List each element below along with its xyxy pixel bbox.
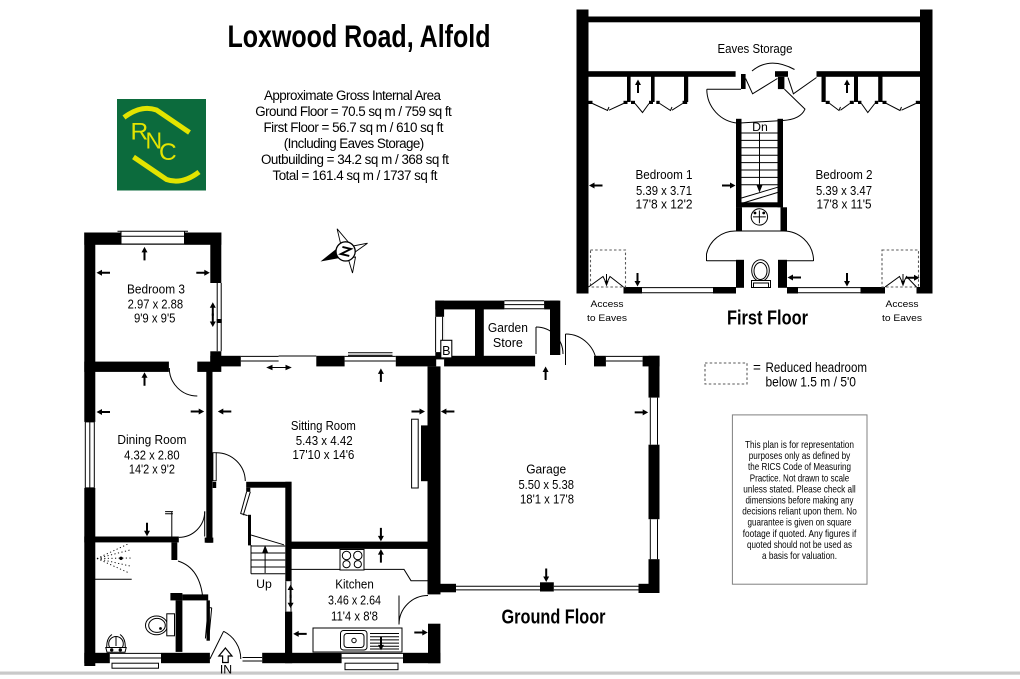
svg-text:5.50 x 5.38: 5.50 x 5.38 [518,477,574,492]
svg-text:dimensions before making any: dimensions before making any [746,496,855,507]
svg-text:Kitchen: Kitchen [335,577,374,592]
svg-text:Reduced headroom: Reduced headroom [766,360,868,375]
svg-text:decisions reliant upon them. N: decisions reliant upon them. No [742,507,857,518]
svg-text:This plan is for representatio: This plan is for representation [745,440,854,451]
svg-text:Loxwood Road, Alfold: Loxwood Road, Alfold [228,18,491,54]
svg-text:5.43 x 4.42: 5.43 x 4.42 [296,433,353,448]
svg-text:Garage: Garage [526,462,566,477]
svg-text:guarantee is given on square: guarantee is given on square [748,518,852,529]
svg-text:below 1.5 m / 5'0: below 1.5 m / 5'0 [766,375,857,390]
svg-text:Sitting Room: Sitting Room [291,418,356,433]
svg-text:Bedroom 3: Bedroom 3 [127,282,185,297]
svg-text:Practice. Not drawn to scale: Practice. Not drawn to scale [750,473,850,484]
svg-text:B: B [442,344,450,358]
svg-text:Access: Access [886,299,919,310]
svg-text:=: = [753,360,761,375]
svg-text:2.97 x 2.88: 2.97 x 2.88 [128,296,184,311]
svg-text:IN: IN [220,663,232,677]
svg-text:(Including Eaves Storage): (Including Eaves Storage) [284,136,425,151]
svg-text:Dining Room: Dining Room [117,432,186,447]
svg-text:to Eaves: to Eaves [882,313,922,324]
svg-text:Total = 161.4 sq m / 1737 sq f: Total = 161.4 sq m / 1737 sq ft [273,168,438,183]
svg-text:Ground Floor: Ground Floor [502,607,606,629]
svg-text:footage if quoted. Any figures: footage if quoted. Any figures if [743,529,857,540]
svg-text:17'8 x 11'5: 17'8 x 11'5 [817,197,872,212]
svg-text:the RICS Code of Measuring: the RICS Code of Measuring [748,462,851,473]
svg-text:Approximate Gross Internal Are: Approximate Gross Internal Area [264,88,442,103]
svg-text:Ground Floor = 70.5 sq m / 759: Ground Floor = 70.5 sq m / 759 sq ft [255,104,452,119]
svg-text:3.46 x 2.64: 3.46 x 2.64 [328,593,381,608]
svg-text:17'8 x 12'2: 17'8 x 12'2 [636,197,693,212]
svg-text:Garden: Garden [488,320,528,335]
svg-text:quoted should not be used as: quoted should not be used as [747,540,852,551]
svg-text:First Floor = 56.7 sq m / 610: First Floor = 56.7 sq m / 610 sq ft [264,120,444,135]
svg-text:4.32 x 2.80: 4.32 x 2.80 [124,448,180,463]
svg-text:Store: Store [493,335,523,350]
svg-text:Access: Access [591,299,624,310]
svg-text:11'4 x 8'8: 11'4 x 8'8 [331,609,378,624]
svg-text:First Floor: First Floor [727,308,808,330]
svg-text:Bedroom 2: Bedroom 2 [816,167,873,182]
svg-text:9'9 x 9'5: 9'9 x 9'5 [134,311,176,326]
svg-text:Up: Up [256,577,272,591]
svg-text:18'1 x 17'8: 18'1 x 17'8 [520,492,574,507]
svg-text:unless stated. Please check al: unless stated. Please check all [743,484,856,495]
svg-text:a basis for valuation.: a basis for valuation. [762,551,837,562]
svg-text:17'10 x 14'6: 17'10 x 14'6 [292,447,354,462]
svg-text:14'2 x 9'2: 14'2 x 9'2 [129,461,175,476]
svg-text:purposes only as defined by: purposes only as defined by [749,451,851,462]
svg-text:C: C [159,139,177,166]
svg-text:Eaves Storage: Eaves Storage [718,41,793,56]
svg-text:to Eaves: to Eaves [587,313,627,324]
svg-text:Outbuilding = 34.2 sq m / 368: Outbuilding = 34.2 sq m / 368 sq ft [261,152,449,167]
svg-text:Bedroom 1: Bedroom 1 [636,167,693,182]
